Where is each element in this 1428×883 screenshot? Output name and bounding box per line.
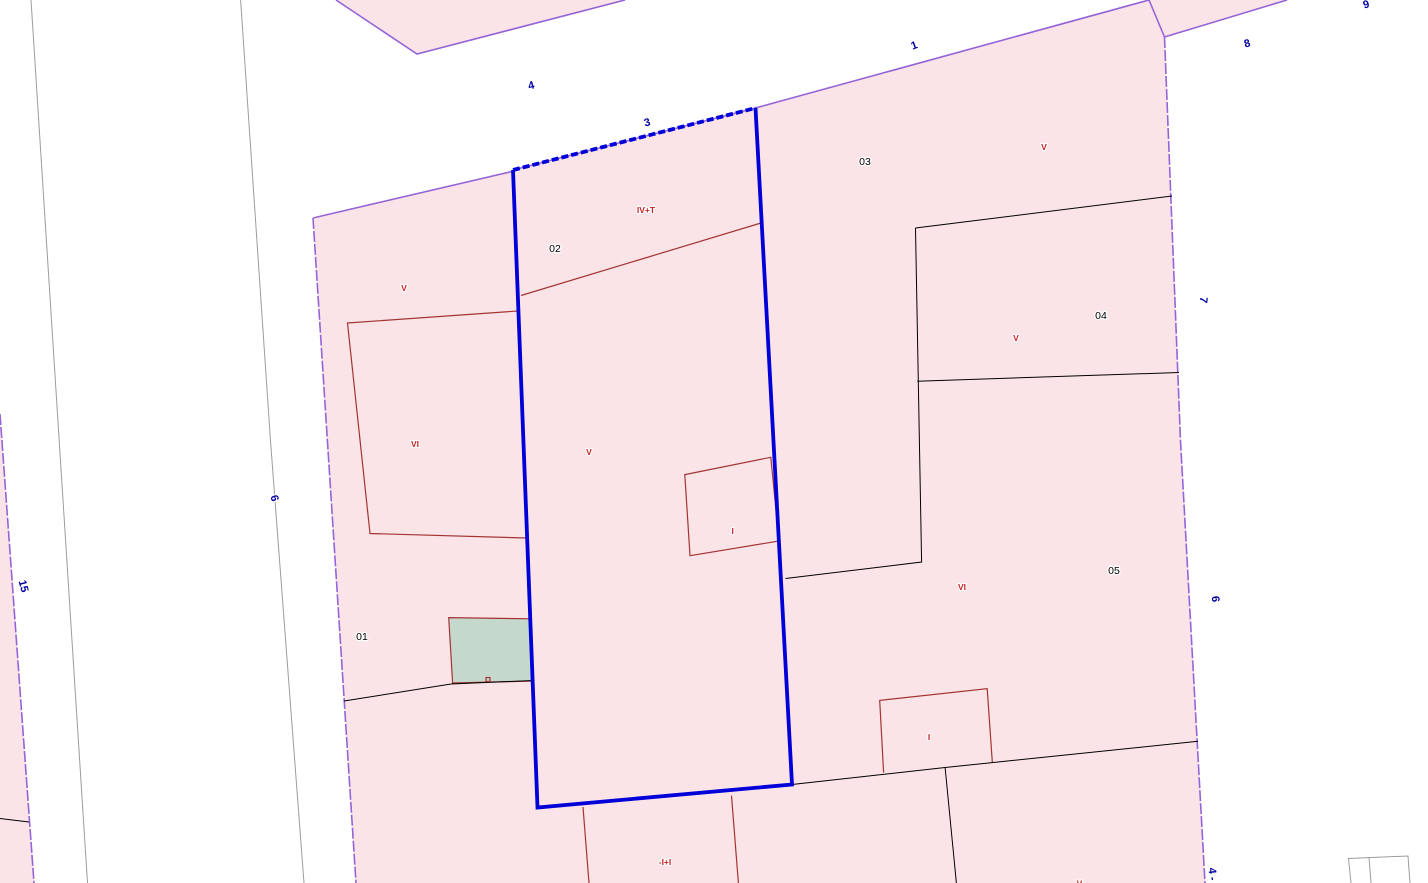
svg-text:VI: VI [958, 582, 966, 592]
svg-text:V: V [401, 283, 407, 293]
svg-text:4 -: 4 - [1205, 867, 1218, 881]
svg-text:04: 04 [1095, 310, 1107, 322]
svg-text:IV+T: IV+T [637, 205, 656, 215]
svg-text:V: V [1077, 879, 1083, 883]
svg-text:01: 01 [356, 631, 368, 643]
svg-text:V: V [1013, 333, 1019, 343]
svg-text:6: 6 [1209, 596, 1221, 603]
svg-text:I: I [732, 526, 734, 536]
svg-text:I: I [928, 732, 930, 742]
svg-text:03: 03 [859, 156, 871, 168]
svg-text:VI: VI [411, 439, 419, 449]
svg-text:V: V [1041, 142, 1047, 152]
svg-text:-I+I: -I+I [659, 857, 672, 867]
svg-text:02: 02 [549, 243, 561, 255]
svg-text:05: 05 [1108, 565, 1120, 577]
svg-text:V: V [586, 447, 592, 457]
